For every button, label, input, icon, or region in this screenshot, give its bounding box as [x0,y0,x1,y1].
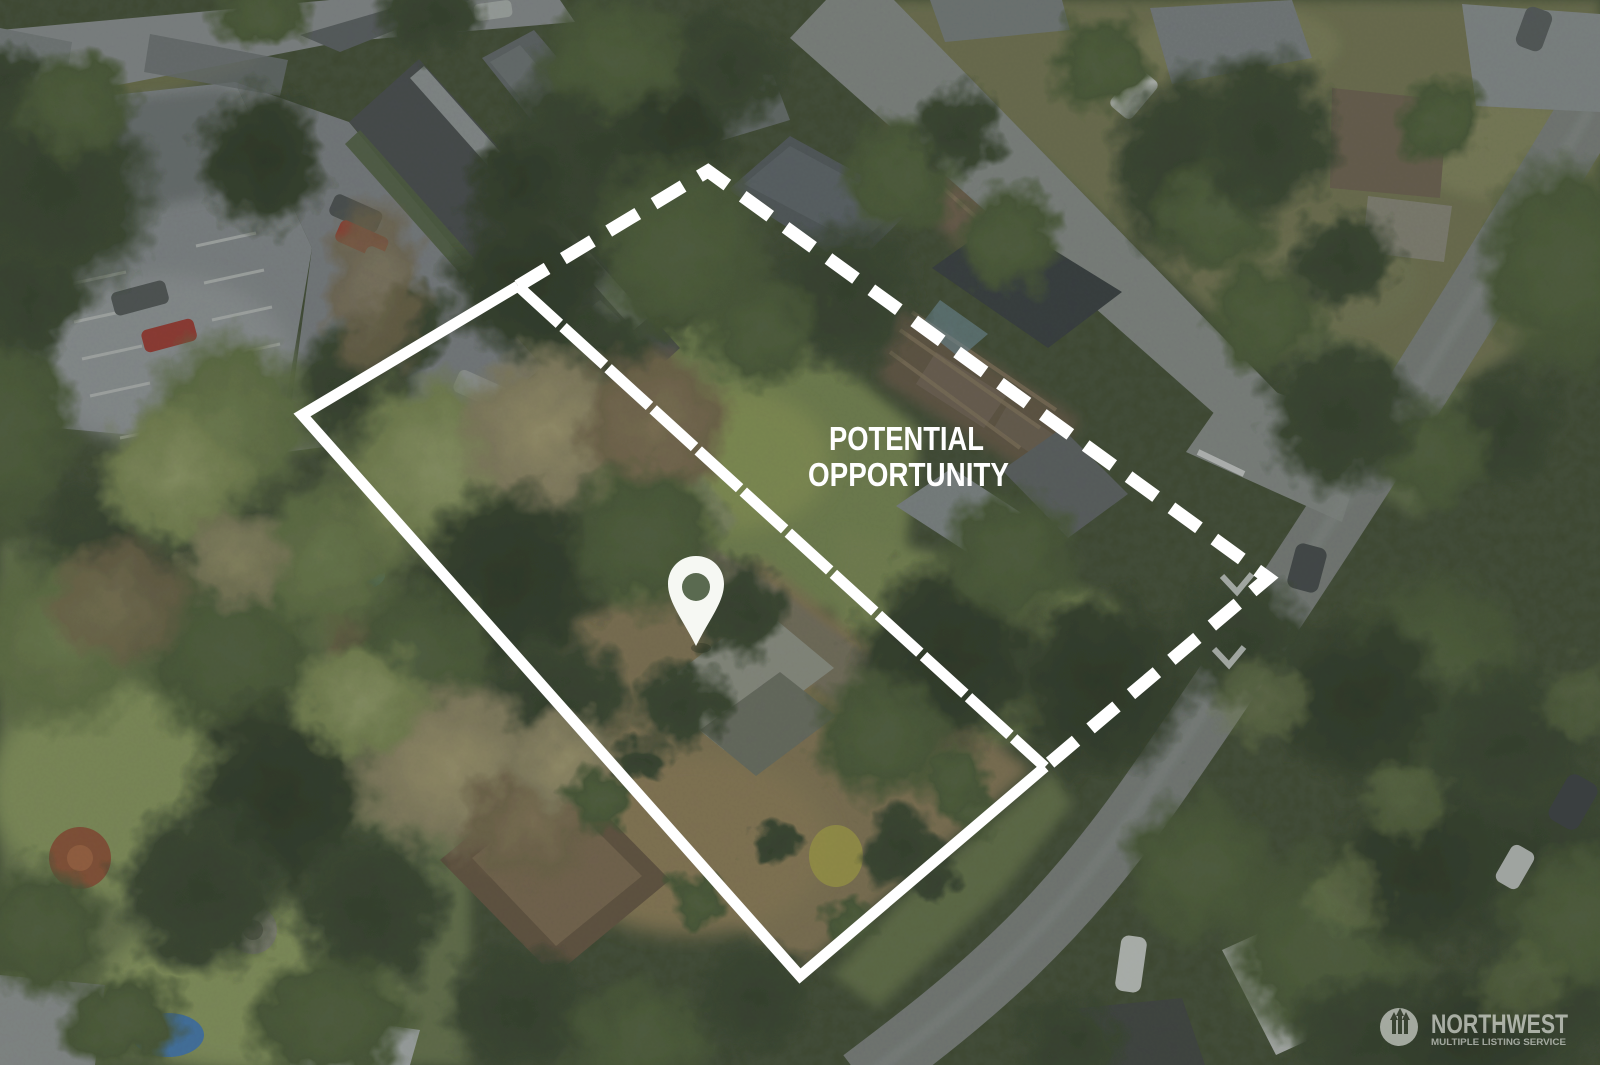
svg-text:POTENTIAL: POTENTIAL [829,420,984,457]
svg-text:MULTIPLE LISTING SERVICE: MULTIPLE LISTING SERVICE [1431,1037,1566,1048]
svg-text:OPPORTUNITY: OPPORTUNITY [808,456,1009,493]
svg-text:NORTHWEST: NORTHWEST [1431,1009,1568,1039]
